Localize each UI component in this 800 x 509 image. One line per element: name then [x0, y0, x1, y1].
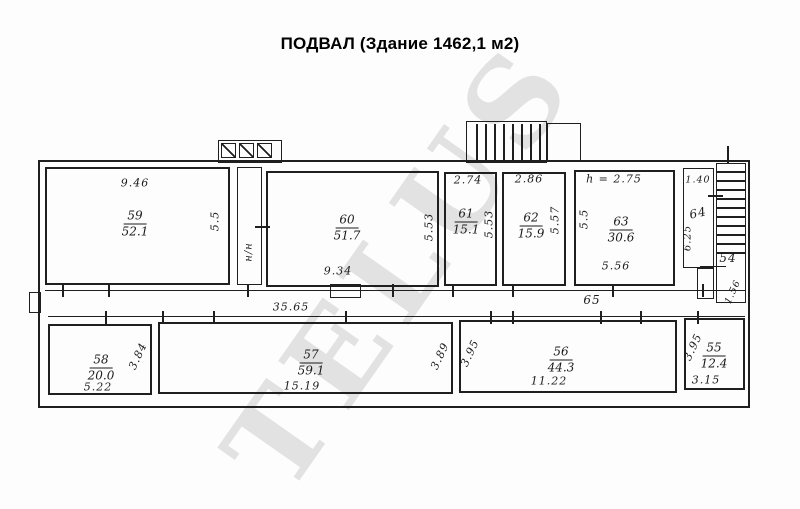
- corridor-65-label: 65: [583, 293, 600, 307]
- room-62-label: 62 15.9: [518, 211, 545, 242]
- window-well-hatched: [218, 140, 282, 163]
- wall-tick: [452, 284, 454, 297]
- room-area: 52.1: [122, 225, 149, 240]
- grate-bars: [469, 124, 544, 160]
- dim-55-bottom: 3.15: [692, 374, 721, 387]
- dim-62-right: 5.57: [549, 206, 562, 235]
- wall-tick: [727, 146, 729, 163]
- room-number: 58: [89, 353, 112, 369]
- entry-landing: [547, 123, 581, 162]
- corridor-wall-top: [45, 290, 745, 291]
- shaft-label: н/н: [244, 242, 255, 262]
- room-area: 59.1: [298, 364, 325, 379]
- hatch-square: [257, 143, 272, 158]
- dim-62-top: 2.86: [515, 173, 544, 186]
- dim-57-bottom: 15.19: [284, 380, 321, 393]
- dim-61-top: 2.74: [454, 174, 483, 187]
- wall-tick: [612, 284, 614, 297]
- wall-tick: [708, 195, 723, 197]
- dim-63-left: 5.5: [578, 209, 591, 230]
- wall-tick: [345, 311, 347, 324]
- dim-63-height-note: h = 2.75: [586, 173, 642, 186]
- dim-58-bottom: 5.22: [84, 381, 113, 394]
- room-area: 51.7: [334, 229, 361, 244]
- wall-tick: [490, 311, 492, 324]
- room-number: 57: [299, 348, 322, 364]
- room-64-step: [697, 268, 714, 299]
- wall-tick: [512, 284, 514, 297]
- floor-plan-page: ПОДВАЛ (Здание 1462,1 м2) TELUS: [0, 0, 800, 509]
- wall-tick: [702, 284, 704, 297]
- wall-tick: [162, 311, 164, 324]
- room-number: 61: [454, 207, 477, 223]
- room-number: 59: [123, 209, 146, 225]
- wall-tick: [512, 311, 514, 324]
- dim-64-top: 1.40: [685, 175, 710, 186]
- wall-tick: [640, 311, 642, 324]
- room-number: 63: [609, 215, 632, 231]
- room-56-label: 56 44.3: [548, 345, 575, 376]
- room-63-label: 63 30.6: [608, 215, 635, 246]
- room-area: 15.9: [518, 227, 545, 242]
- room-59-label: 59 52.1: [122, 209, 149, 240]
- room-number: 55: [702, 341, 725, 357]
- wall-tick: [108, 284, 110, 297]
- room-number: 62: [519, 211, 542, 227]
- dim-59-top: 9.46: [121, 177, 150, 190]
- room-area: 12.4: [701, 357, 728, 372]
- dim-60-right: 5.53: [423, 213, 436, 242]
- dim-63-bottom: 5.56: [602, 260, 631, 273]
- room-area: 30.6: [608, 231, 635, 246]
- wall-tick: [697, 311, 699, 324]
- dim-60-bottom: 9.34: [324, 265, 353, 278]
- room-area: 44.3: [548, 361, 575, 376]
- wall-tick: [255, 226, 270, 228]
- door-detail: [330, 284, 361, 298]
- dim-59-right: 5.5: [209, 211, 222, 232]
- hatch-square: [221, 143, 236, 158]
- room-60-label: 60 51.7: [334, 213, 361, 244]
- wall-tick: [392, 284, 394, 297]
- room-61-label: 61 15.1: [453, 207, 480, 238]
- wall-tick: [62, 284, 64, 297]
- wall-tick: [213, 311, 215, 324]
- hatch-square: [239, 143, 254, 158]
- wall-tick: [105, 311, 107, 324]
- room-55-label: 55 12.4: [701, 341, 728, 372]
- dim-64-left: 6.25: [683, 225, 694, 251]
- room-58-label: 58 20.0: [88, 353, 115, 384]
- room-number: 56: [549, 345, 572, 361]
- stair-steps: [717, 164, 745, 258]
- dim-56-bottom: 11.22: [531, 375, 568, 388]
- entry-grate: [466, 121, 547, 163]
- wall-tick: [600, 311, 602, 324]
- room-area: 15.1: [453, 223, 480, 238]
- room-54-label: 54: [719, 251, 736, 265]
- left-wall-niche: [29, 292, 41, 313]
- room-57-label: 57 59.1: [298, 348, 325, 379]
- leader-line-54: [700, 266, 726, 267]
- wall-tick: [247, 284, 249, 297]
- room-number: 60: [335, 213, 358, 229]
- dim-61-right: 5.53: [483, 210, 496, 239]
- page-title: ПОДВАЛ (Здание 1462,1 м2): [0, 34, 800, 54]
- dim-corridor-length: 35.65: [273, 301, 310, 314]
